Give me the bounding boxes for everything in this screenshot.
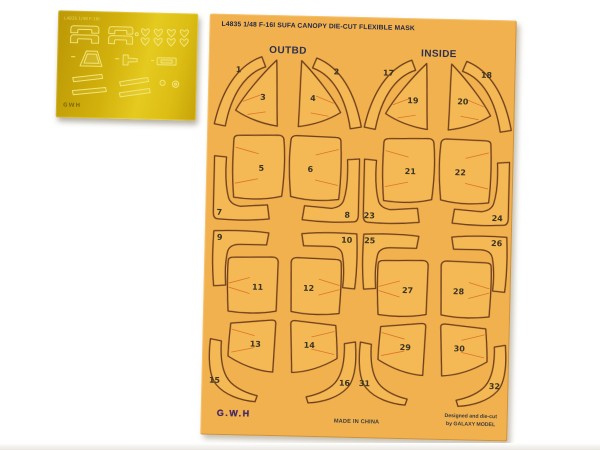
- part-number-label: 28: [453, 287, 465, 296]
- designer-line2: by GALAXY MODEL: [438, 420, 502, 429]
- part-number-label: 12: [303, 284, 314, 293]
- part-number-label: 3: [260, 93, 266, 102]
- part-number-label: 7: [216, 208, 222, 217]
- part-number-label: 2: [334, 67, 340, 76]
- part-number-label: 11: [252, 283, 264, 292]
- etch-strip-shapes: [72, 74, 179, 99]
- etch-bracket-shapes: [71, 26, 133, 45]
- mask-part-shape: [289, 135, 342, 200]
- part-number-label: 8: [344, 211, 350, 220]
- designer-credit: Designed and die-cut by GALAXY MODEL: [438, 413, 502, 429]
- part-number-label: 31: [359, 379, 371, 388]
- mask-part-27: 27: [377, 259, 429, 317]
- part-number-label: 23: [364, 211, 375, 220]
- part-number-label: 5: [258, 164, 264, 173]
- part-number-label: 6: [307, 165, 313, 174]
- part-number-label: 17: [383, 69, 394, 78]
- part-number-label: 20: [457, 97, 469, 106]
- etch-clover-shapes: [135, 29, 188, 47]
- mask-part-5: 5: [232, 134, 285, 199]
- part-number-label: 4: [310, 94, 316, 103]
- mask-parts-canvas: OUTBD INSIDE 123456789101112131415161718…: [200, 14, 516, 442]
- part-number-label: 24: [492, 214, 504, 223]
- part-number-label: 29: [400, 343, 412, 352]
- section-label-outbd: OUTBD: [269, 45, 307, 57]
- mask-part-12: 12: [290, 257, 342, 315]
- part-number-label: 16: [339, 379, 351, 388]
- mask-parts-group: 1234567891011121314151617181920212223242…: [208, 56, 513, 408]
- mask-part-28: 28: [440, 261, 492, 319]
- part-number-label: 26: [491, 239, 503, 248]
- mask-part-11: 11: [227, 256, 279, 314]
- mask-part-29: 29: [378, 322, 426, 375]
- part-number-label: 22: [455, 168, 466, 177]
- part-number-label: 30: [454, 344, 466, 353]
- part-number-label: 10: [341, 236, 353, 245]
- mask-part-21: 21: [382, 138, 435, 203]
- gwh-logo: G.W.H: [217, 408, 251, 419]
- mask-part-6: 6: [289, 135, 342, 200]
- pe-code-text: L4835 1/48 F-16I: [64, 15, 100, 21]
- mask-part-13: 13: [228, 319, 276, 372]
- etch-misc-shapes: [71, 51, 176, 69]
- part-number-label: 27: [402, 286, 413, 295]
- part-number-label: 14: [304, 341, 316, 350]
- photo-etch-parts: L4835 1/48 F-16I: [56, 10, 199, 120]
- section-label-inside: INSIDE: [421, 48, 457, 60]
- mask-part-30: 30: [440, 324, 488, 377]
- part-number-label: 18: [481, 71, 493, 80]
- part-number-label: 1: [236, 65, 242, 74]
- photo-etch-sheet: L4835 1/48 F-16I: [56, 10, 199, 120]
- mask-part-shape: [440, 261, 492, 319]
- part-number-label: 19: [407, 96, 419, 105]
- photo-floor-edge: [0, 443, 600, 450]
- part-number-label: 32: [489, 382, 500, 391]
- part-number-label: 13: [250, 340, 261, 349]
- mask-part-shape: [290, 257, 342, 315]
- part-number-label: 9: [217, 233, 223, 242]
- mask-sheet: L4835 1/48 F-16I SUFA CANOPY DIE-CUT FLE…: [200, 14, 516, 442]
- product-photo: L4835 1/48 F-16I: [0, 0, 600, 450]
- mask-part-22: 22: [438, 139, 491, 204]
- part-number-label: 25: [364, 236, 376, 245]
- pe-gwh-logo: GWH: [63, 102, 81, 108]
- part-number-label: 15: [209, 376, 221, 385]
- part-number-label: 21: [405, 167, 417, 176]
- mask-part-14: 14: [290, 320, 338, 373]
